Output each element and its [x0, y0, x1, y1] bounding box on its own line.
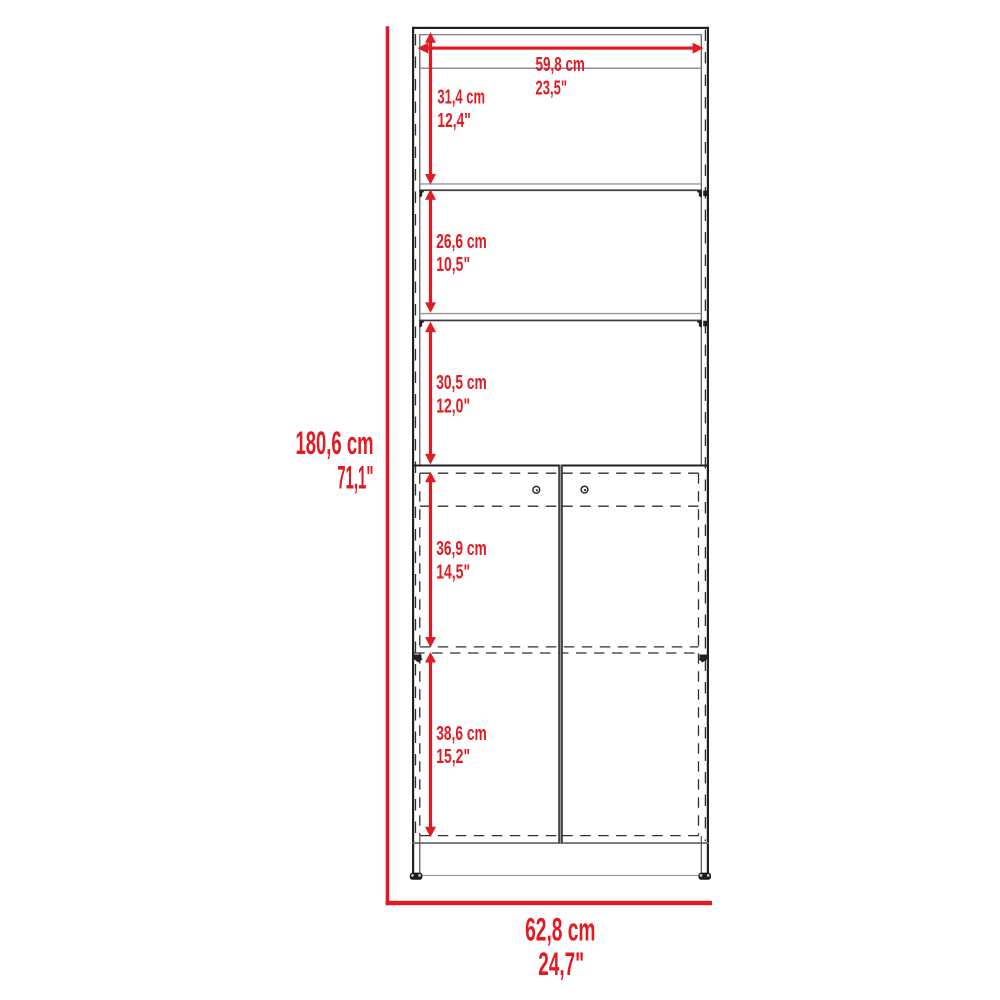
svg-text:38,6 cm: 38,6 cm — [436, 722, 487, 745]
svg-text:31,4 cm: 31,4 cm — [437, 85, 485, 108]
svg-text:23,5": 23,5" — [536, 77, 568, 100]
svg-text:12,0": 12,0" — [436, 395, 470, 418]
svg-text:62,8 cm: 62,8 cm — [525, 912, 595, 948]
svg-text:12,4": 12,4" — [437, 109, 470, 132]
svg-text:59,8 cm: 59,8 cm — [536, 53, 585, 76]
svg-text:15,2": 15,2" — [436, 745, 470, 768]
svg-text:10,5": 10,5" — [436, 253, 470, 276]
svg-text:30,5 cm: 30,5 cm — [436, 371, 487, 394]
svg-text:24,7": 24,7" — [538, 946, 584, 982]
svg-text:36,9 cm: 36,9 cm — [436, 537, 487, 560]
svg-text:26,6 cm: 26,6 cm — [436, 230, 487, 253]
svg-text:14,5": 14,5" — [436, 560, 470, 583]
svg-text:71,1": 71,1" — [337, 459, 373, 495]
svg-text:180,6 cm: 180,6 cm — [296, 425, 374, 461]
